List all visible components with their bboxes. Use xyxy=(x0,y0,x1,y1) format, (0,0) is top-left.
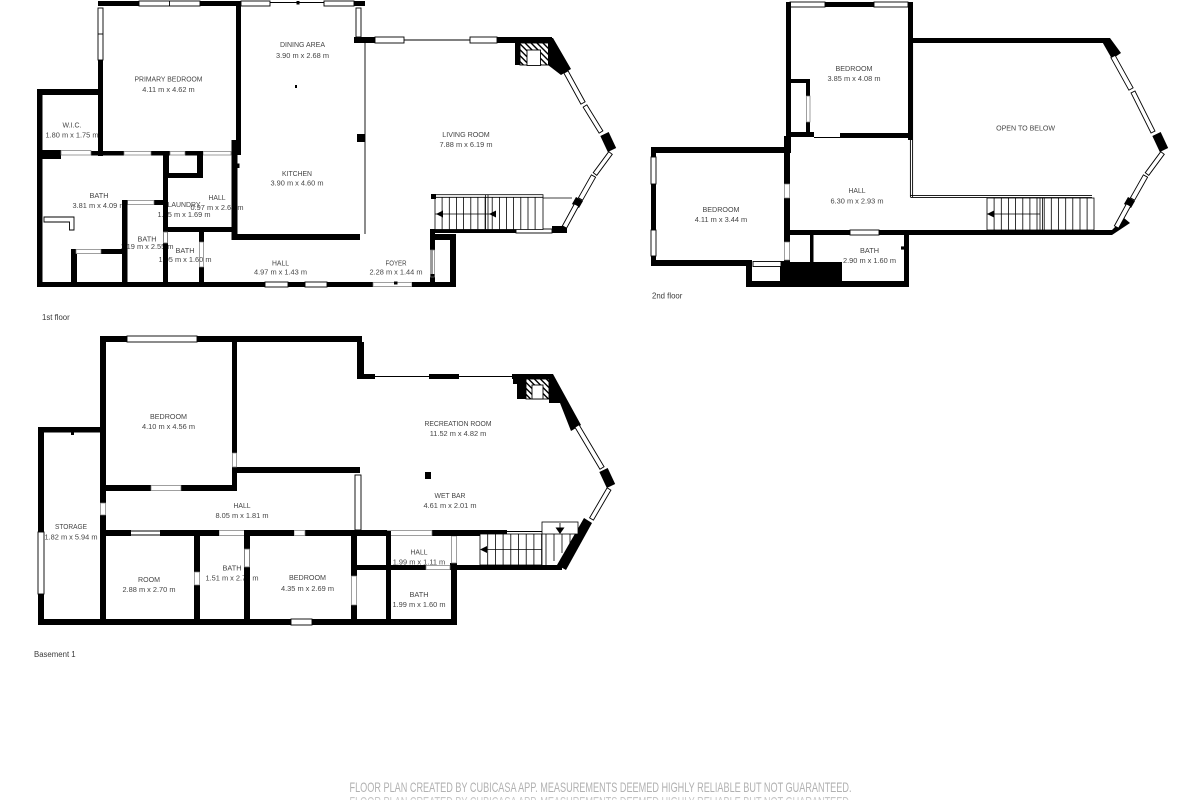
svg-text:BEDROOM: BEDROOM xyxy=(703,205,740,214)
svg-text:KITCHEN: KITCHEN xyxy=(282,169,312,178)
svg-text:1.82 m x 5.94 m: 1.82 m x 5.94 m xyxy=(45,533,98,542)
svg-text:2.28 m x 1.44 m: 2.28 m x 1.44 m xyxy=(370,268,423,277)
svg-text:2nd floor: 2nd floor xyxy=(652,292,683,301)
svg-text:3.81 m x 4.09 m: 3.81 m x 4.09 m xyxy=(73,201,126,210)
svg-text:3.90 m x 4.60 m: 3.90 m x 4.60 m xyxy=(271,179,324,188)
svg-text:ROOM: ROOM xyxy=(138,575,160,584)
svg-text:BEDROOM: BEDROOM xyxy=(836,64,873,73)
svg-text:BEDROOM: BEDROOM xyxy=(289,573,326,582)
svg-text:HALL: HALL xyxy=(272,259,290,268)
svg-text:BEDROOM: BEDROOM xyxy=(150,412,187,421)
svg-text:1.51 m x 2.70 m: 1.51 m x 2.70 m xyxy=(206,574,259,583)
svg-text:FOYER: FOYER xyxy=(386,259,407,268)
svg-text:4.10 m x 4.56 m: 4.10 m x 4.56 m xyxy=(142,422,195,431)
svg-text:DINING AREA: DINING AREA xyxy=(280,40,326,49)
svg-text:PRIMARY BEDROOM: PRIMARY BEDROOM xyxy=(135,75,203,84)
svg-text:1st floor: 1st floor xyxy=(42,313,70,322)
svg-text:3.85 m x 4.08 m: 3.85 m x 4.08 m xyxy=(828,74,881,83)
svg-text:1.80 m x 1.75 m: 1.80 m x 1.75 m xyxy=(46,130,99,139)
svg-text:BATH: BATH xyxy=(223,564,242,573)
svg-text:FLOOR PLAN CREATED BY CUBICASA: FLOOR PLAN CREATED BY CUBICASA APP. MEAS… xyxy=(350,780,852,795)
svg-text:BATH: BATH xyxy=(410,590,429,599)
svg-text:HALL: HALL xyxy=(234,501,252,510)
svg-text:STORAGE: STORAGE xyxy=(55,522,87,531)
svg-text:W.I.C.: W.I.C. xyxy=(63,120,82,129)
svg-text:3.90 m x 2.68 m: 3.90 m x 2.68 m xyxy=(276,51,329,60)
svg-text:4.97 m x 1.43 m: 4.97 m x 1.43 m xyxy=(254,268,307,277)
svg-text:HALL: HALL xyxy=(209,193,227,202)
svg-text:RECREATION ROOM: RECREATION ROOM xyxy=(425,419,492,428)
svg-text:Basement 1: Basement 1 xyxy=(34,650,76,659)
svg-text:8.05 m x 1.81 m: 8.05 m x 1.81 m xyxy=(216,511,269,520)
svg-text:HALL: HALL xyxy=(849,186,867,195)
svg-text:2.88 m x 2.70 m: 2.88 m x 2.70 m xyxy=(123,585,176,594)
svg-text:OPEN TO BELOW: OPEN TO BELOW xyxy=(996,124,1056,133)
svg-text:WET BAR: WET BAR xyxy=(435,491,466,500)
svg-text:HALL: HALL xyxy=(411,548,429,557)
svg-text:BATH: BATH xyxy=(860,246,879,255)
svg-text:2.90 m x 1.60 m: 2.90 m x 1.60 m xyxy=(843,256,896,265)
svg-text:BATH: BATH xyxy=(90,191,109,200)
svg-text:7.88 m x 6.19 m: 7.88 m x 6.19 m xyxy=(440,140,493,149)
svg-text:4.35 m x 2.69 m: 4.35 m x 2.69 m xyxy=(281,584,334,593)
svg-text:4.11 m x 4.62 m: 4.11 m x 4.62 m xyxy=(142,85,194,94)
svg-text:11.52 m x 4.82 m: 11.52 m x 4.82 m xyxy=(430,429,487,438)
svg-text:6.30 m x 2.93 m: 6.30 m x 2.93 m xyxy=(831,197,884,206)
svg-text:LIVING ROOM: LIVING ROOM xyxy=(442,130,490,139)
svg-text:FLOOR PLAN CREATED BY CUBICASA: FLOOR PLAN CREATED BY CUBICASA APP. MEAS… xyxy=(350,795,852,800)
svg-text:BATH: BATH xyxy=(176,246,195,255)
svg-text:4.61 m x 2.01 m: 4.61 m x 2.01 m xyxy=(424,501,477,510)
svg-text:4.11 m x 3.44 m: 4.11 m x 3.44 m xyxy=(695,215,747,224)
svg-text:1.99 m x 1.60 m: 1.99 m x 1.60 m xyxy=(393,600,446,609)
